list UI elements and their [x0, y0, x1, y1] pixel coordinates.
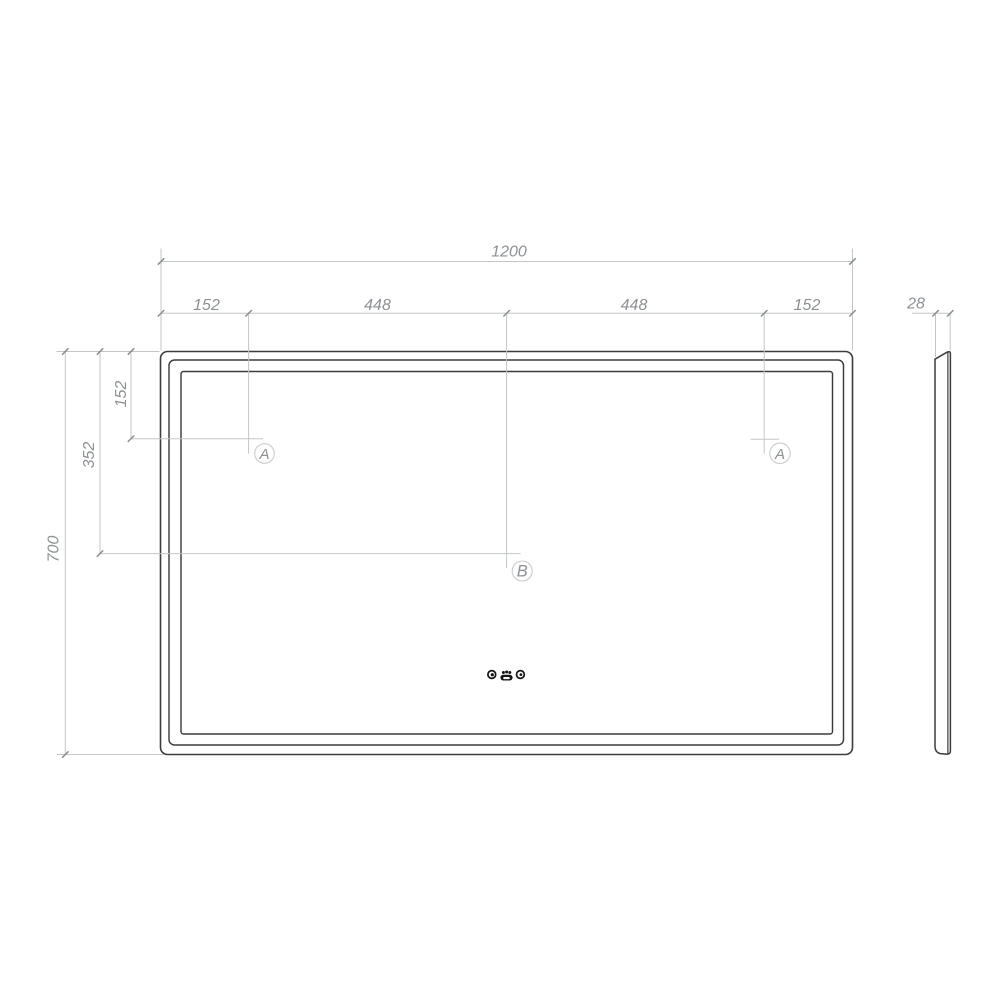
- svg-text:1200: 1200: [491, 244, 527, 261]
- svg-text:700: 700: [46, 536, 63, 563]
- svg-text:152: 152: [113, 381, 130, 408]
- svg-text:A: A: [774, 446, 785, 463]
- svg-text:152: 152: [794, 297, 821, 314]
- svg-text:352: 352: [81, 442, 98, 469]
- svg-text:448: 448: [621, 297, 648, 314]
- svg-text:B: B: [517, 563, 528, 581]
- svg-text:28: 28: [906, 296, 925, 313]
- svg-text:448: 448: [364, 297, 391, 314]
- svg-text:A: A: [258, 446, 269, 463]
- svg-text:152: 152: [193, 297, 220, 314]
